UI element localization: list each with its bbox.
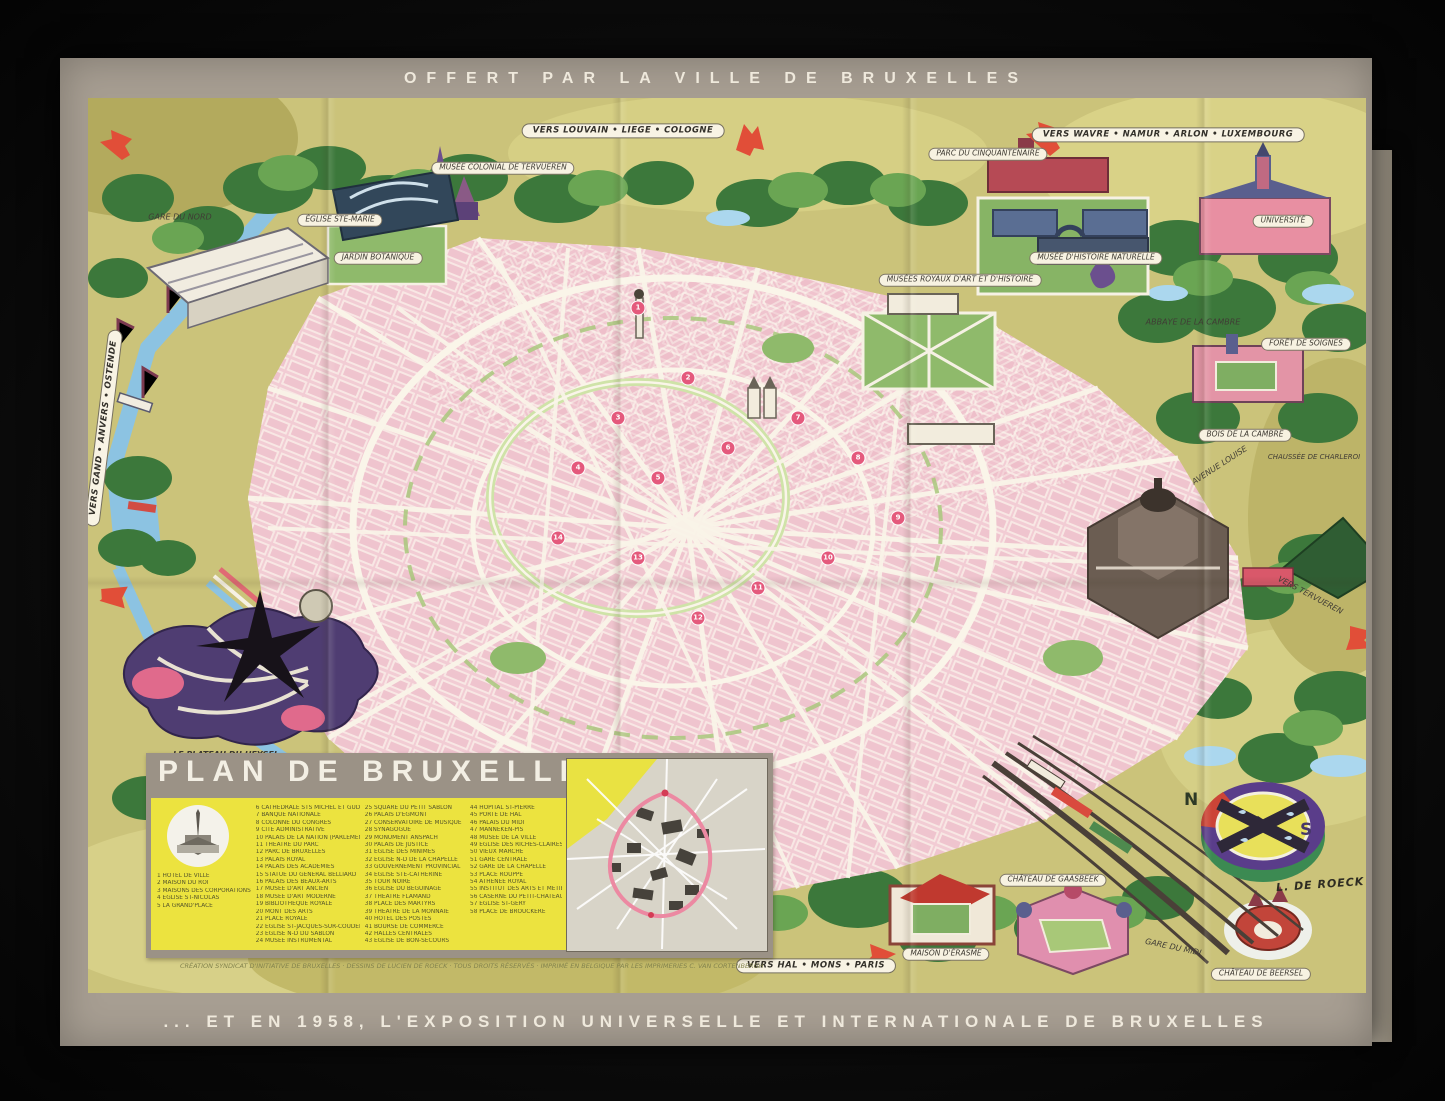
legend-list-2: 6 CATHÉDRALE STS MICHEL ET GUDULE7 BANQU… [256, 803, 360, 946]
label-foret-soignes: FORÊT DE SOIGNES [1261, 338, 1351, 351]
map-marker-11: 11 [751, 581, 766, 596]
legend-title: PLAN DE BRUXELLES [158, 755, 588, 789]
label-bois-cambre: BOIS DE LA CAMBRE [1199, 429, 1292, 442]
landmark-maison-erasme [890, 874, 994, 944]
legend-entry: 28 SYNAGOGUE [365, 827, 465, 834]
legend-entry: 8 COLONNE DU CONGRÈS [256, 820, 360, 827]
legend-entry: 41 BOURSE DE COMMERCE [365, 924, 465, 931]
poster-fold-flap [1372, 150, 1392, 1042]
legend-entry: 45 PORTE DE HAL [470, 812, 562, 819]
legend-entry: 31 ÉGLISE DES MINIMES [365, 849, 465, 856]
legend-entry: 3 MAISONS DES CORPORATIONS [157, 888, 251, 895]
legend-entry: 35 TOUR NOIRE [365, 879, 465, 886]
legend-entry: 37 THÉÂTRE FLAMAND [365, 894, 465, 901]
label-chateau-beersel: CHÂTEAU DE BEERSEL [1211, 968, 1311, 981]
map-marker-2: 2 [681, 371, 696, 386]
legend-entry: 17 MUSÉE D'ART ANCIEN [256, 886, 360, 893]
map-canvas: VERS LOUVAIN • LIEGE • COLOGNE VERS WAVR… [88, 98, 1366, 993]
legend-entry: 12 PARC DE BRUXELLES [256, 849, 360, 856]
inset-map-art [567, 759, 765, 949]
legend-entry: 9 CITÉ ADMINISTRATIVE [256, 827, 360, 834]
landmark-palais-nation [888, 294, 958, 314]
label-maison-erasme: MAISON D'ÉRASME [902, 948, 989, 961]
legend-entry: 56 CASERNE DU PETIT-CHÂTEAU [470, 894, 562, 901]
legend-list-3: 25 SQUARE DU PETIT SABLON26 PALAIS D'EGM… [365, 803, 465, 946]
legend-entry: 54 ATHÉNÉE ROYAL [470, 879, 562, 886]
legend-entry: 4 ÉGLISE ST-NICOLAS [157, 895, 251, 902]
legend-entry: 19 BIBLIOTHÈQUE ROYALE [256, 901, 360, 908]
legend-entry: 23 ÉGLISE N-D DU SABLON [256, 931, 360, 938]
legend-list-4: 44 HÔPITAL ST-PIERRE45 PORTE DE HAL46 PA… [470, 803, 562, 946]
legend-entry: 10 PALAIS DE LA NATION (PARLEMENT) [256, 835, 360, 842]
legend-entry: 30 PALAIS DE JUSTICE [365, 842, 465, 849]
legend-entry: 52 GARE DE LA CHAPELLE [470, 864, 562, 871]
legend-entry: 46 PALAIS DU MIDI [470, 820, 562, 827]
legend-entry: 1 HÔTEL DE VILLE [157, 873, 251, 880]
label-musee-histoire-naturelle: MUSÉE D'HISTOIRE NATURELLE [1029, 252, 1162, 265]
sign-vers-louvain: VERS LOUVAIN • LIEGE • COLOGNE [522, 123, 725, 138]
label-gare-du-nord: GARE DU NORD [148, 214, 211, 223]
label-cinquantenaire: PARC DU CINQUANTENAIRE [928, 148, 1047, 161]
map-marker-7: 7 [791, 411, 806, 426]
legend-entry: 13 PALAIS ROYAL [256, 857, 360, 864]
legend-entry: 34 ÉGLISE STE-CATHERINE [365, 872, 465, 879]
legend-entry: 29 MONUMENT ANSPACH [365, 835, 465, 842]
legend-entry: 14 PALAIS DES ACADÉMIES [256, 864, 360, 871]
legend-entry: 21 PLACE ROYALE [256, 916, 360, 923]
town-hall-vignette [167, 805, 229, 867]
legend-entry: 50 VIEUX MARCHÉ [470, 849, 562, 856]
label-eglise-ste-marie: ÉGLISE STE-MARIE [297, 214, 382, 227]
legend-entry: 38 PLACE DES MARTYRS [365, 901, 465, 908]
map-marker-4: 4 [571, 461, 586, 476]
legend-credits: CRÉATION SYNDICAT D'INITIATIVE DE BRUXEL… [180, 962, 780, 970]
legend-entry: 16 PALAIS DES BEAUX-ARTS [256, 879, 360, 886]
legend-entry: 32 ÉGLISE N-D DE LA CHAPELLE [365, 857, 465, 864]
town-hall-sketch [167, 805, 229, 867]
label-musee-colonial: MUSÉE COLONIAL DE TERVUEREN [431, 162, 574, 175]
legend-entry: 27 CONSERVATOIRE DE MUSIQUE [365, 820, 465, 827]
legend-box: PLAN DE BRUXELLES 1 HÔTEL DE VILLE2 MAIS… [146, 753, 773, 958]
legend-entry: 22 ÉGLISE ST-JACQUES-SUR-COUDENBERG [256, 924, 360, 931]
legend-column-1: 1 HÔTEL DE VILLE2 MAISON DU ROI3 MAISONS… [157, 803, 251, 946]
legend-entry: 42 HALLES CENTRALES [365, 931, 465, 938]
map-marker-13: 13 [631, 551, 646, 566]
map-marker-5: 5 [651, 471, 666, 486]
legend-entry: 49 ÉGLISE DES RICHES-CLAIRES [470, 842, 562, 849]
legend-entry: 43 ÉGLISE DE BON-SECOURS [365, 938, 465, 945]
legend-entry: 36 ÉGLISE DU BÉGUINAGE [365, 886, 465, 893]
sign-vers-wavre: VERS WAVRE • NAMUR • ARLON • LUXEMBOURG [1032, 127, 1305, 142]
legend-entry: 58 PLACE DE BROUCKÈRE [470, 909, 562, 916]
label-universite: UNIVERSITÉ [1253, 215, 1314, 228]
legend-entry: 6 CATHÉDRALE STS MICHEL ET GUDULE [256, 805, 360, 812]
bottom-banner: ... ET EN 1958, L'EXPOSITION UNIVERSELLE… [60, 1012, 1372, 1032]
legend-entry: 40 HÔTEL DES POSTES [365, 916, 465, 923]
legend-entry: 51 GARE CENTRALE [470, 857, 562, 864]
legend-entry: 7 BANQUE NATIONALE [256, 812, 360, 819]
map-poster: OFFERT PAR LA VILLE DE BRUXELLES ... ET … [60, 58, 1372, 1046]
legend-entry: 39 THÉÂTRE DE LA MONNAIE [365, 909, 465, 916]
legend-entry: 33 GOUVERNEMENT PROVINCIAL [365, 864, 465, 871]
label-musees-royaux: MUSÉES ROYAUX D'ART ET D'HISTOIRE [879, 274, 1042, 287]
label-chateau-gaasbeek: CHÂTEAU DE GAASBEEK [999, 874, 1106, 887]
map-marker-6: 6 [721, 441, 736, 456]
legend-entry: 18 MUSÉE D'ART MODERNE [256, 894, 360, 901]
inset-city-map [566, 758, 768, 952]
legend-entry: 48 MUSÉE DE LA VILLE [470, 835, 562, 842]
compass-north: N [1184, 790, 1198, 810]
photo-background: OFFERT PAR LA VILLE DE BRUXELLES ... ET … [0, 0, 1445, 1101]
legend-entry: 47 MANNEKEN-PIS [470, 827, 562, 834]
compass-south: S [1300, 820, 1312, 840]
map-marker-1: 1 [631, 301, 646, 316]
legend-entry: 2 MAISON DU ROI [157, 880, 251, 887]
map-marker-10: 10 [821, 551, 836, 566]
map-marker-14: 14 [551, 531, 566, 546]
legend-entry: 15 STATUE DU GÉNÉRAL BELLIARD [256, 872, 360, 879]
legend-entry: 57 ÉGLISE ST-GÉRY [470, 901, 562, 908]
legend-entry: 44 HÔPITAL ST-PIERRE [470, 805, 562, 812]
legend-list-1: 1 HÔTEL DE VILLE2 MAISON DU ROI3 MAISONS… [157, 873, 251, 910]
map-marker-12: 12 [691, 611, 706, 626]
label-chaussee-charleroi: CHAUSSÉE DE CHARLEROI [1268, 454, 1360, 462]
legend-entry: 55 INSTITUT DES ARTS ET MÉTIERS [470, 886, 562, 893]
landmark-palais-royal [908, 424, 994, 444]
map-marker-9: 9 [891, 511, 906, 526]
legend-entry: 24 MUSÉE INSTRUMENTAL [256, 938, 360, 945]
map-marker-3: 3 [611, 411, 626, 426]
legend-entry: 25 SQUARE DU PETIT SABLON [365, 805, 465, 812]
legend-entry: 53 PLACE ROUPPE [470, 872, 562, 879]
legend-entry: 5 LA GRAND'PLACE [157, 903, 251, 910]
label-jardin-botanique: JARDIN BOTANIQUE [334, 252, 423, 265]
top-banner: OFFERT PAR LA VILLE DE BRUXELLES [60, 70, 1372, 88]
legend-entry: 26 PALAIS D'EGMONT [365, 812, 465, 819]
legend-entry: 11 THÉÂTRE DU PARC [256, 842, 360, 849]
map-marker-8: 8 [851, 451, 866, 466]
legend-panel: 1 HÔTEL DE VILLE2 MAISON DU ROI3 MAISONS… [151, 798, 566, 950]
legend-entry: 20 MONT DES ARTS [256, 909, 360, 916]
label-abbaye-cambre: ABBAYE DE LA CAMBRE [1146, 319, 1241, 328]
